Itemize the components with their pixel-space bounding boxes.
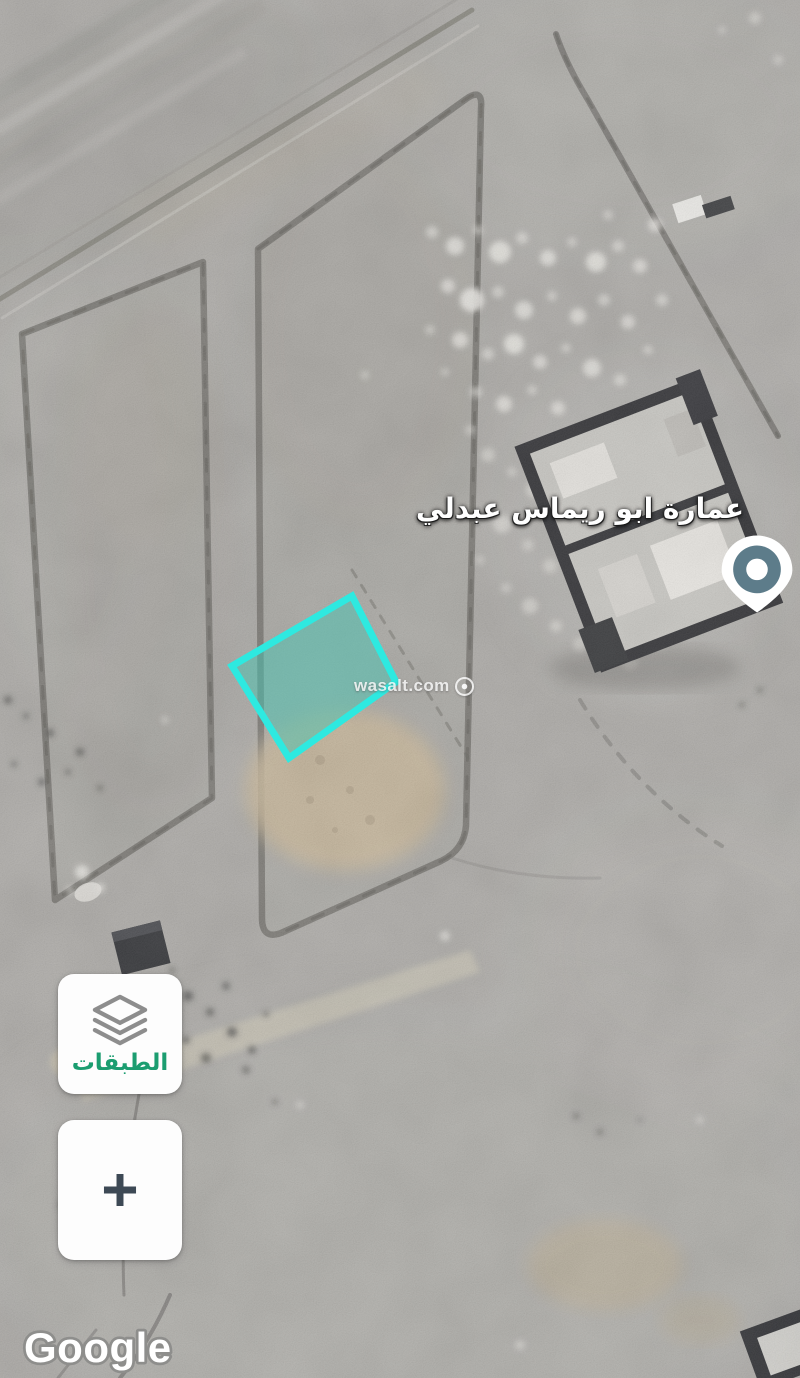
google-attribution-text: Google xyxy=(24,1324,172,1371)
plus-icon xyxy=(97,1167,143,1213)
layers-button[interactable]: الطبقات xyxy=(58,974,182,1094)
zoom-in-button[interactable] xyxy=(58,1120,182,1260)
watermark-badge-icon xyxy=(455,677,474,696)
google-attribution: Google xyxy=(16,1316,236,1378)
watermark: wasalt.com xyxy=(354,676,474,696)
map-marker-icon[interactable] xyxy=(720,534,794,614)
layers-icon xyxy=(89,994,151,1046)
map-canvas[interactable]: عمارة ابو ريماس عبدلي wasalt.com الطبقات… xyxy=(0,0,800,1378)
layers-button-label: الطبقات xyxy=(72,1052,169,1075)
watermark-text: wasalt.com xyxy=(354,676,450,696)
marker-center-dot xyxy=(746,559,768,581)
place-label: عمارة ابو ريماس عبدلي xyxy=(416,492,744,525)
